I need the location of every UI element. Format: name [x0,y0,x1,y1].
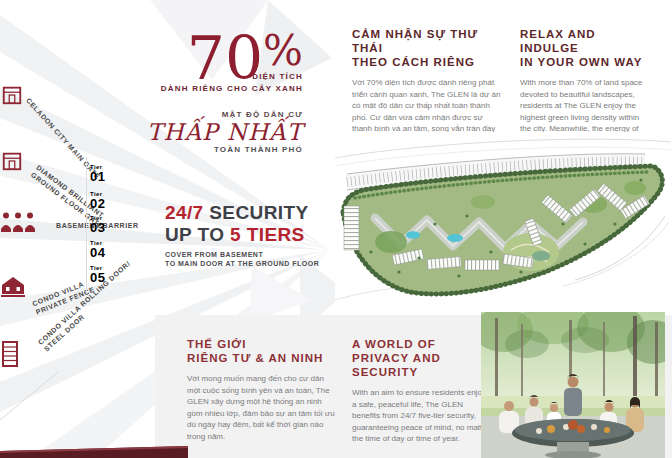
security-guards-icon [0,211,36,237]
privacy-section-panel: THẾ GIỚI RIÊNG TƯ & AN NINH Với mong muố… [155,315,672,458]
master-plan-map [335,132,672,308]
family-dining-photo [481,312,665,458]
brochure-page: CELADON CITY MAIN GATE DIAMOND BRILLIANT… [0,0,672,458]
green-area-stat: 70% DIỆN TÍCH DÀNH RIÊNG CHO CÂY XANH MẬ… [133,22,303,154]
section-privacy-vi: THẾ GIỚI RIÊNG TƯ & AN NINH Với mong muố… [187,337,339,442]
tier-badge: Tier 01 [90,164,105,183]
tier-badge: Tier 02 [90,191,105,210]
tier-badge: Tier 03 [90,215,105,234]
tier-divider-line [86,157,87,293]
ground-floor-gate-icon [1,150,23,176]
villa-fence-icon [0,274,26,302]
tier-badge: Tier 05 [90,265,105,284]
density-stat: MẬT ĐỘ DÂN CƯ THẤP NHẤT TOÀN THÀNH PHỐ [133,110,303,154]
section-privacy-en: A WORLD OF PRIVACY AND SECURITY With an … [352,337,490,445]
security-stat: 24/7 SECURITY UP TO 5 TIERS COVER FROM B… [165,202,319,268]
tier-badge: Tier 04 [90,240,105,259]
stat-caption: DÀNH RIÊNG CHO CÂY XANH [133,84,303,93]
main-gate-icon [1,84,23,110]
steel-door-icon [0,340,20,372]
